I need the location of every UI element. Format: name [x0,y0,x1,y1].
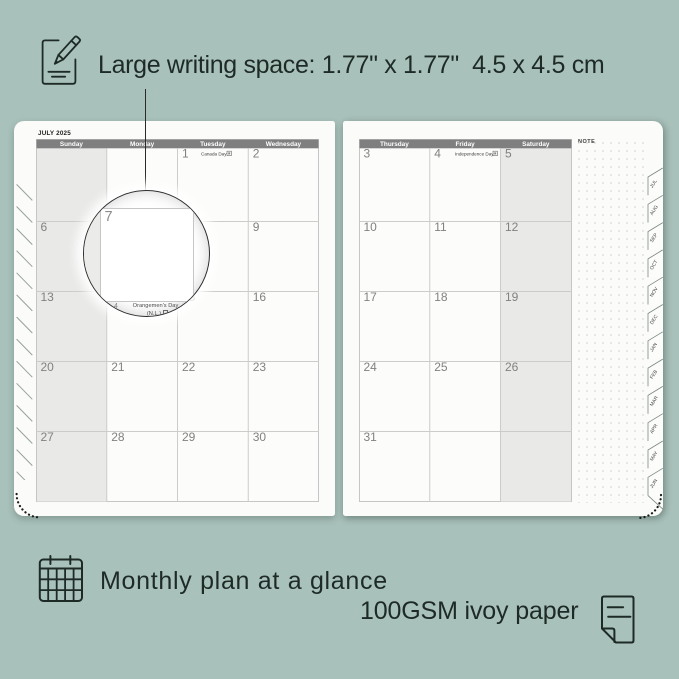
svg-text:12: 12 [505,220,519,234]
svg-text:Thursday: Thursday [380,141,409,148]
svg-text:30: 30 [253,430,267,444]
svg-text:13: 13 [41,290,55,304]
svg-text:2: 2 [253,147,260,161]
svg-text:29: 29 [182,430,196,444]
svg-text:Wednesday: Wednesday [266,141,302,148]
svg-text:18: 18 [434,290,448,304]
svg-text:11: 11 [434,220,447,234]
svg-text:Tuesday: Tuesday [200,141,226,148]
svg-text:20: 20 [41,360,55,374]
svg-text:10: 10 [364,220,378,234]
svg-text:28: 28 [111,430,125,444]
svg-text:9: 9 [253,220,260,234]
svg-text:Monday: Monday [130,141,155,148]
svg-text:6: 6 [41,220,48,234]
svg-text:Independence Day: Independence Day [455,152,494,157]
svg-text:19: 19 [505,290,519,304]
svg-text:1: 1 [182,147,189,161]
svg-text:4: 4 [434,147,441,161]
svg-text:21: 21 [111,360,125,374]
svg-text:3: 3 [364,147,371,161]
svg-text:22: 22 [182,360,196,374]
svg-text:Saturday: Saturday [522,141,550,148]
svg-text:31: 31 [364,430,378,444]
svg-text:Sunday: Sunday [60,141,84,148]
svg-text:17: 17 [364,290,378,304]
svg-text:26: 26 [505,360,519,374]
svg-text:Friday: Friday [456,141,476,148]
svg-text:16: 16 [253,290,267,304]
svg-text:27: 27 [41,430,55,444]
svg-text:24: 24 [364,360,378,374]
svg-text:23: 23 [253,360,267,374]
svg-text:5: 5 [505,147,512,161]
svg-text:Canada Day: Canada Day [201,152,227,157]
svg-text:25: 25 [434,360,448,374]
